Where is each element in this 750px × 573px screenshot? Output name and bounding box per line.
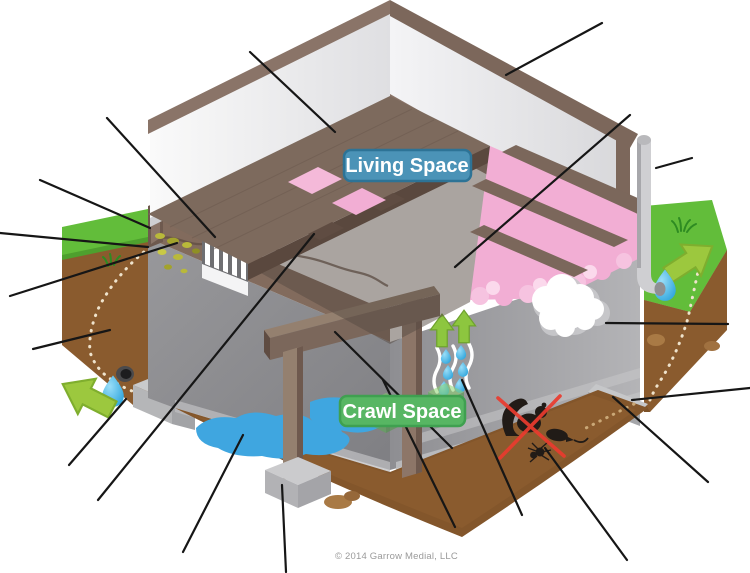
leader-line-footing-interior (613, 397, 708, 482)
leader-line-top-plate (506, 23, 602, 75)
copyright-text: © 2014 Garrow Medial, LLC (335, 551, 458, 562)
leader-line-mold (606, 323, 728, 324)
crawl-space-label: Crawl Space (340, 396, 465, 426)
leader-line-downspout-pipe (656, 158, 692, 168)
drain-hole (121, 369, 132, 379)
leader-line-puddle (183, 435, 243, 552)
right-ground (644, 200, 727, 412)
dirt-clod (704, 341, 720, 351)
crawl-space-label-text: Crawl Space (343, 401, 462, 423)
squirrel-ear (542, 403, 547, 408)
living-space-label-text: Living Space (345, 155, 468, 177)
living-space-label: Living Space (344, 150, 471, 181)
leader-line-pests (545, 448, 627, 560)
diagram-canvas: Living Space Crawl Space (0, 0, 750, 573)
dirt-clod (344, 491, 360, 501)
support-post-front-shade (297, 346, 303, 476)
dirt-clod (647, 334, 665, 346)
crawlspace-diagram: Living Space Crawl Space © 2014 Garrow M… (0, 0, 750, 573)
